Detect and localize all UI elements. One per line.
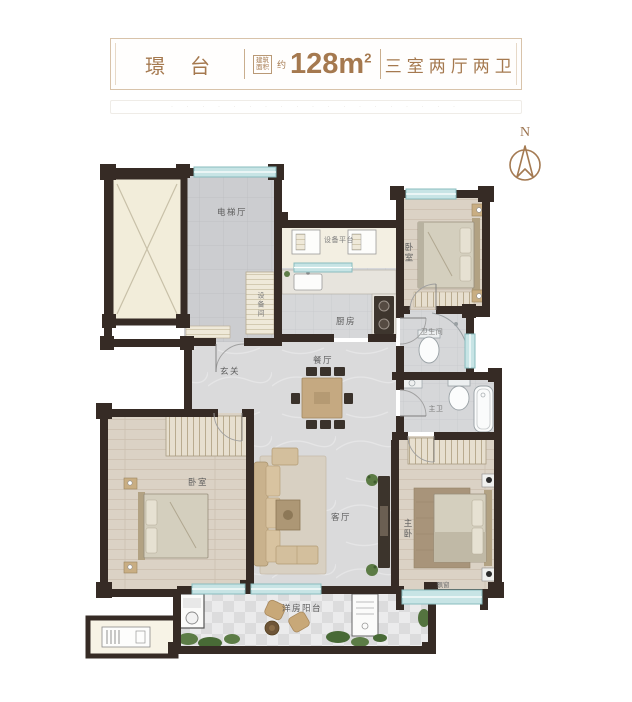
ac-platform-box bbox=[88, 618, 176, 656]
floorplan-page: 璟 台 建筑面积 约 128m2 三室两厅两卫 · · · · · · · · … bbox=[0, 0, 632, 702]
title-banner: 璟 台 建筑面积 约 128m2 三室两厅两卫 bbox=[110, 38, 522, 90]
area-section: 建筑面积 约 128m2 bbox=[245, 39, 380, 89]
area-value: 128m2 bbox=[290, 48, 371, 81]
floorplan: 电梯厅 设备平台 设备间 厨房 卧室 卫生间 玄关 餐厅 主卫 卧室 客厅 主卧… bbox=[80, 150, 532, 665]
master-bedroom-furniture bbox=[408, 438, 496, 581]
room-label-living: 客厅 bbox=[331, 511, 351, 523]
north-label: N bbox=[503, 126, 547, 140]
room-label-bedroom-west: 卧室 bbox=[188, 476, 208, 488]
room-label-elevator-hall: 电梯厅 bbox=[217, 206, 247, 218]
layout-type: 三室两厅两卫 bbox=[381, 39, 521, 89]
room-label-bathroom: 卫生间 bbox=[421, 327, 444, 337]
room-label-balcony: 洋房阳台 bbox=[282, 602, 322, 614]
room-label-dining: 餐厅 bbox=[313, 354, 333, 366]
approx-label: 约 bbox=[277, 58, 286, 71]
elevator-shaft bbox=[110, 176, 184, 322]
area-label-box: 建筑面积 bbox=[253, 55, 272, 74]
project-name: 璟 台 bbox=[111, 39, 244, 89]
room-label-master-bath: 主卫 bbox=[429, 404, 444, 414]
room-label-equipment-room: 设备间 bbox=[255, 292, 265, 319]
room-label-bay-window: 飘窗 bbox=[437, 579, 450, 589]
room-label-kitchen: 厨房 bbox=[336, 315, 356, 327]
room-label-bedroom-north: 卧室 bbox=[403, 243, 415, 264]
room-label-master-bedroom: 主卧 bbox=[402, 519, 414, 540]
floorplan-drawing bbox=[80, 150, 532, 665]
room-label-foyer: 玄关 bbox=[220, 365, 240, 377]
room-label-equipment-platform: 设备平台 bbox=[324, 235, 354, 245]
watermark-bar: · · · · · · · · · · · · · · · · · · · bbox=[110, 100, 522, 114]
